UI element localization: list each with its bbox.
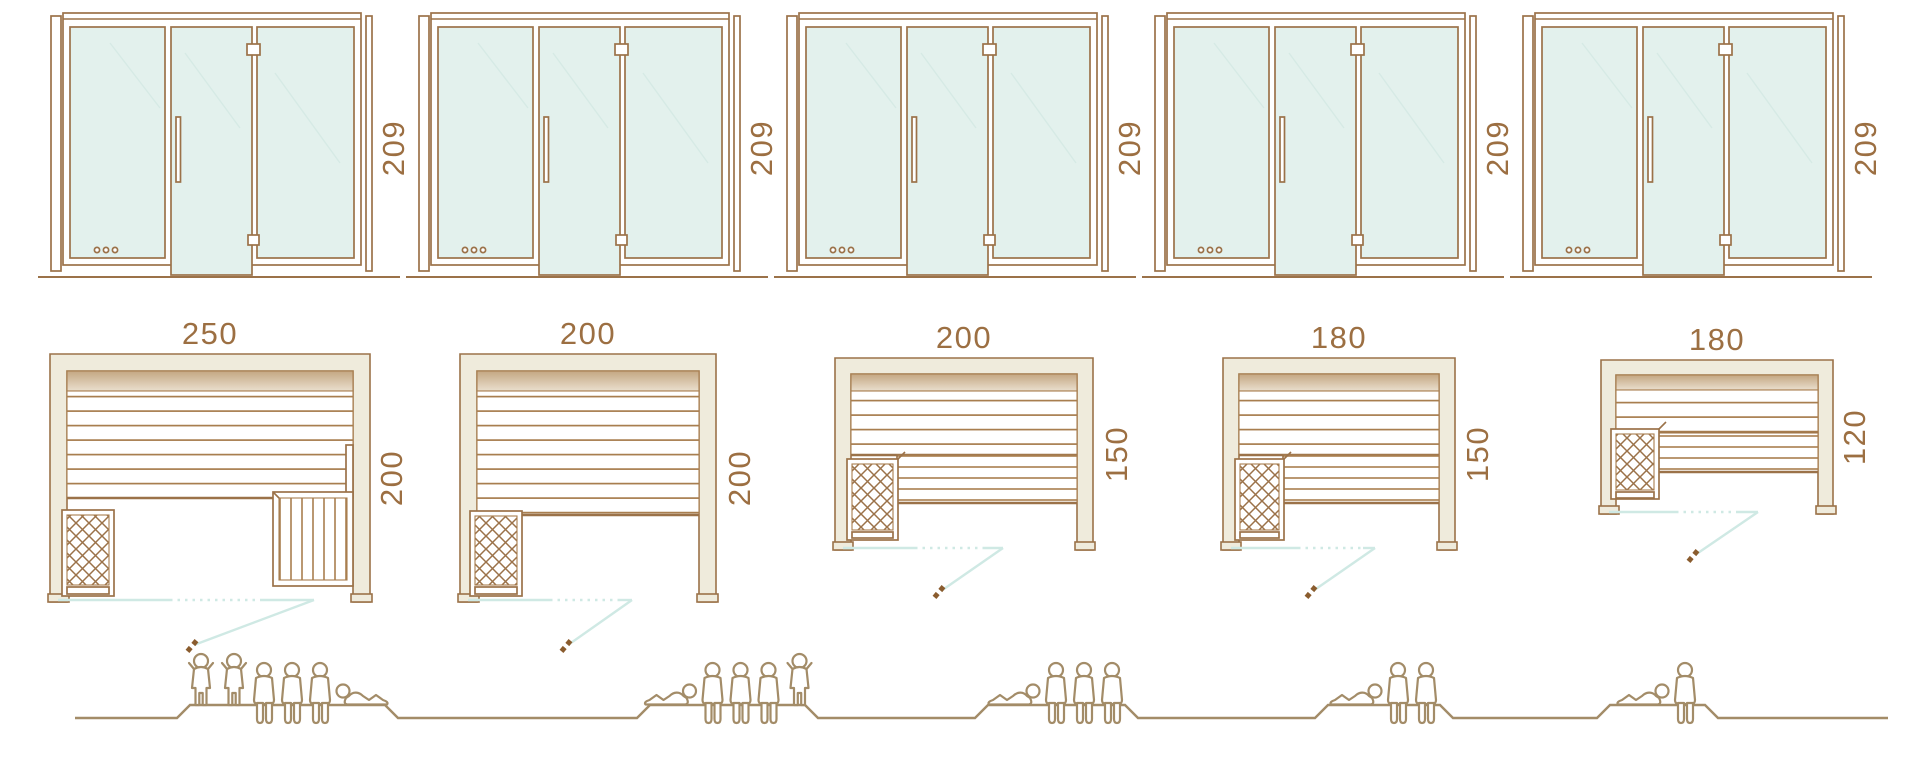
person-sitting-icon [1675, 663, 1695, 723]
person-sitting-icon [731, 663, 751, 723]
plan-width-dimension: 250 [182, 316, 238, 351]
door-swing-line [1695, 512, 1758, 555]
sauna-size-diagram: 209 [0, 0, 1920, 764]
person-sitting-icon [759, 663, 779, 723]
person-reclining-icon [645, 685, 696, 705]
unit-180x120: 209 180 120 [1510, 13, 1883, 563]
plan-width-dimension: 200 [936, 320, 992, 355]
back-bench-edge [851, 374, 1077, 391]
wall-foot [1075, 542, 1095, 550]
capacity-group-2 [1618, 663, 1696, 723]
front-height-dimension: 209 [1480, 120, 1515, 176]
door-hinge-marker [560, 639, 573, 653]
capacity-group-3 [1331, 663, 1437, 723]
door-swing-line [194, 600, 314, 645]
person-sitting-icon [254, 663, 274, 723]
back-bench-edge [67, 371, 353, 391]
person-standing-icon [788, 654, 812, 705]
wall-foot [1437, 542, 1457, 550]
person-reclining-icon [1618, 685, 1669, 705]
bench-slats [1616, 390, 1818, 433]
person-reclining-icon [989, 685, 1040, 705]
person-sitting-icon [282, 663, 302, 723]
capacity-group-6 [189, 654, 388, 723]
front-height-dimension: 209 [744, 120, 779, 176]
back-bench-edge [477, 371, 699, 391]
door-hinge-marker [933, 585, 946, 599]
lower-bench-slats [1283, 455, 1439, 503]
capacity-group-4 [989, 663, 1123, 723]
person-sitting-icon [1046, 663, 1066, 723]
floor-plan [458, 354, 718, 653]
plan-depth-dimension: 150 [1099, 426, 1134, 482]
person-standing-icon [222, 654, 246, 705]
unit-200x200: 209 200 200 [406, 13, 779, 653]
lower-bench-slats [1657, 433, 1818, 472]
person-sitting-icon [1416, 663, 1436, 723]
person-sitting-icon [1388, 663, 1408, 723]
door-hinge-marker [1305, 585, 1318, 599]
lower-bench-slats [897, 455, 1077, 503]
door-swing-line [941, 548, 1003, 591]
unit-180x150: 209 180 150 [1142, 13, 1515, 599]
door-swing-line [1313, 548, 1375, 591]
wall-foot [351, 594, 372, 602]
heater [62, 510, 114, 596]
door-hinge-marker [186, 639, 199, 653]
wall-foot [1816, 506, 1836, 514]
bench-slats [1239, 391, 1439, 455]
person-sitting-icon [310, 663, 330, 723]
back-bench-edge [1239, 374, 1439, 391]
door-front-elevation [787, 13, 1108, 275]
floor-plan [48, 354, 372, 653]
door-swing-line [568, 600, 632, 645]
plan-width-dimension: 180 [1689, 322, 1745, 357]
heater [1235, 452, 1291, 540]
heater [470, 511, 522, 596]
person-sitting-icon [703, 663, 723, 723]
bench-slats [851, 391, 1077, 455]
person-reclining-mirrored-icon [337, 685, 388, 705]
door-hinge-marker [1687, 549, 1700, 563]
capacity-ground-line [75, 705, 1888, 718]
floor-plan [1221, 358, 1457, 599]
front-height-dimension: 209 [1848, 120, 1883, 176]
back-bench-edge [1616, 375, 1818, 390]
door-front-elevation [419, 13, 740, 275]
plan-width-dimension: 180 [1311, 320, 1367, 355]
person-standing-icon [189, 654, 213, 705]
plan-depth-dimension: 120 [1837, 409, 1872, 465]
front-height-dimension: 209 [376, 120, 411, 176]
floor-plan [833, 358, 1095, 599]
front-height-dimension: 209 [1112, 120, 1147, 176]
person-reclining-icon [1331, 685, 1382, 705]
bench-slats [67, 391, 353, 498]
door-front-elevation [1523, 13, 1844, 275]
person-sitting-icon [1102, 663, 1122, 723]
unit-250x200: 209 [38, 13, 411, 653]
plan-depth-dimension: 200 [722, 450, 757, 506]
wall-foot [697, 594, 718, 602]
door-front-elevation [1155, 13, 1476, 275]
heater [847, 452, 905, 540]
step-bench [273, 492, 353, 586]
person-sitting-icon [1074, 663, 1094, 723]
unit-200x150: 209 200 150 [774, 13, 1147, 599]
heater [1611, 422, 1666, 499]
capacity-group-5 [645, 654, 812, 723]
plan-depth-dimension: 150 [1460, 426, 1495, 482]
bench-side-rail [346, 445, 353, 498]
plan-width-dimension: 200 [560, 316, 616, 351]
floor-plan [1599, 360, 1836, 563]
bench-slats [477, 391, 699, 515]
plan-depth-dimension: 200 [374, 450, 409, 506]
door-front-elevation [51, 13, 372, 275]
